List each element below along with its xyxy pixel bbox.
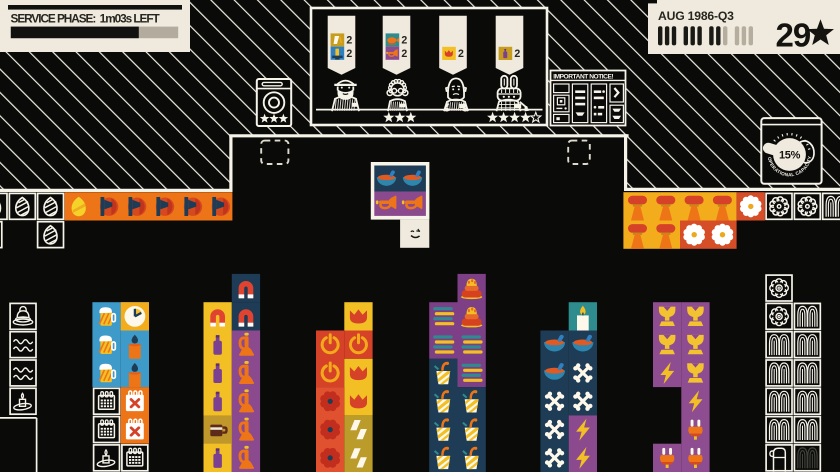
svg-text:2: 2	[401, 35, 407, 47]
svg-text:IMPORTANT NOTICE!: IMPORTANT NOTICE!	[553, 73, 613, 80]
svg-text:2: 2	[458, 48, 464, 60]
svg-text:2: 2	[514, 48, 520, 60]
svg-text:29: 29	[776, 17, 811, 54]
svg-text:15%: 15%	[779, 150, 801, 162]
svg-text:2: 2	[346, 48, 352, 60]
svg-text:SERVICE PHASE: 1m03s LEFT: SERVICE PHASE: 1m03s LEFT	[11, 11, 161, 25]
svg-text:2: 2	[346, 35, 352, 47]
svg-text:2: 2	[401, 48, 407, 60]
svg-text:AUG 1986-Q3: AUG 1986-Q3	[658, 9, 734, 23]
